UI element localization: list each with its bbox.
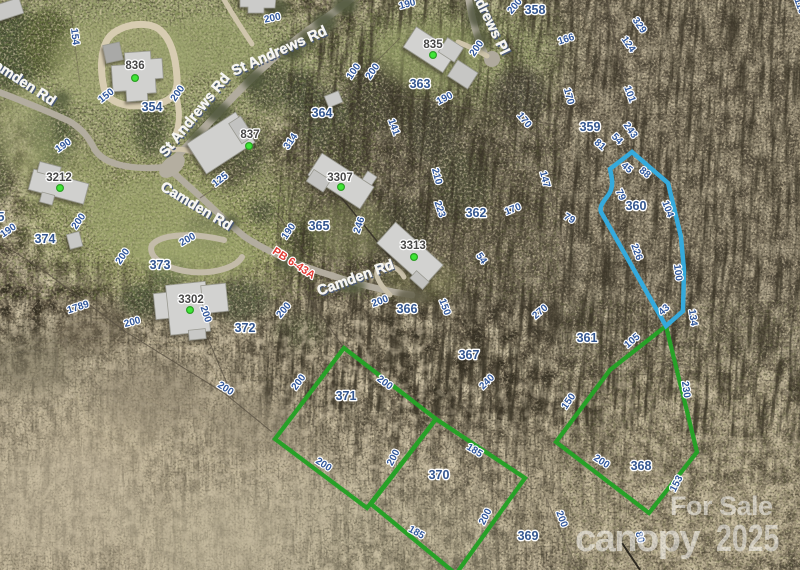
svg-text:358: 358 (525, 3, 546, 17)
svg-text:369: 369 (518, 529, 539, 543)
svg-text:373: 373 (150, 258, 171, 272)
svg-text:837: 837 (240, 129, 259, 141)
svg-text:354: 354 (142, 100, 163, 114)
svg-text:3313: 3313 (400, 240, 426, 252)
svg-text:359: 359 (580, 120, 601, 134)
svg-text:370: 370 (429, 468, 450, 482)
svg-text:372: 372 (235, 321, 256, 335)
svg-text:375: 375 (0, 210, 4, 224)
svg-text:3212: 3212 (46, 172, 72, 184)
svg-text:361: 361 (577, 331, 598, 345)
svg-text:365: 365 (309, 219, 330, 233)
svg-text:835: 835 (423, 39, 443, 51)
svg-text:3302: 3302 (178, 294, 204, 306)
svg-text:374: 374 (35, 232, 56, 246)
svg-text:367: 367 (459, 348, 480, 362)
svg-text:364: 364 (312, 106, 333, 120)
svg-text:2025: 2025 (716, 518, 779, 560)
svg-text:154: 154 (68, 28, 81, 46)
svg-text:371: 371 (336, 389, 357, 403)
svg-text:836: 836 (125, 60, 144, 72)
svg-text:368: 368 (631, 459, 652, 473)
svg-text:363: 363 (410, 77, 431, 91)
svg-text:362: 362 (466, 206, 487, 220)
svg-text:3307: 3307 (327, 172, 353, 184)
svg-text:For Sale: For Sale (670, 491, 773, 521)
svg-text:360: 360 (626, 199, 647, 213)
svg-text:366: 366 (397, 302, 418, 316)
svg-text:canopy: canopy (575, 518, 700, 560)
